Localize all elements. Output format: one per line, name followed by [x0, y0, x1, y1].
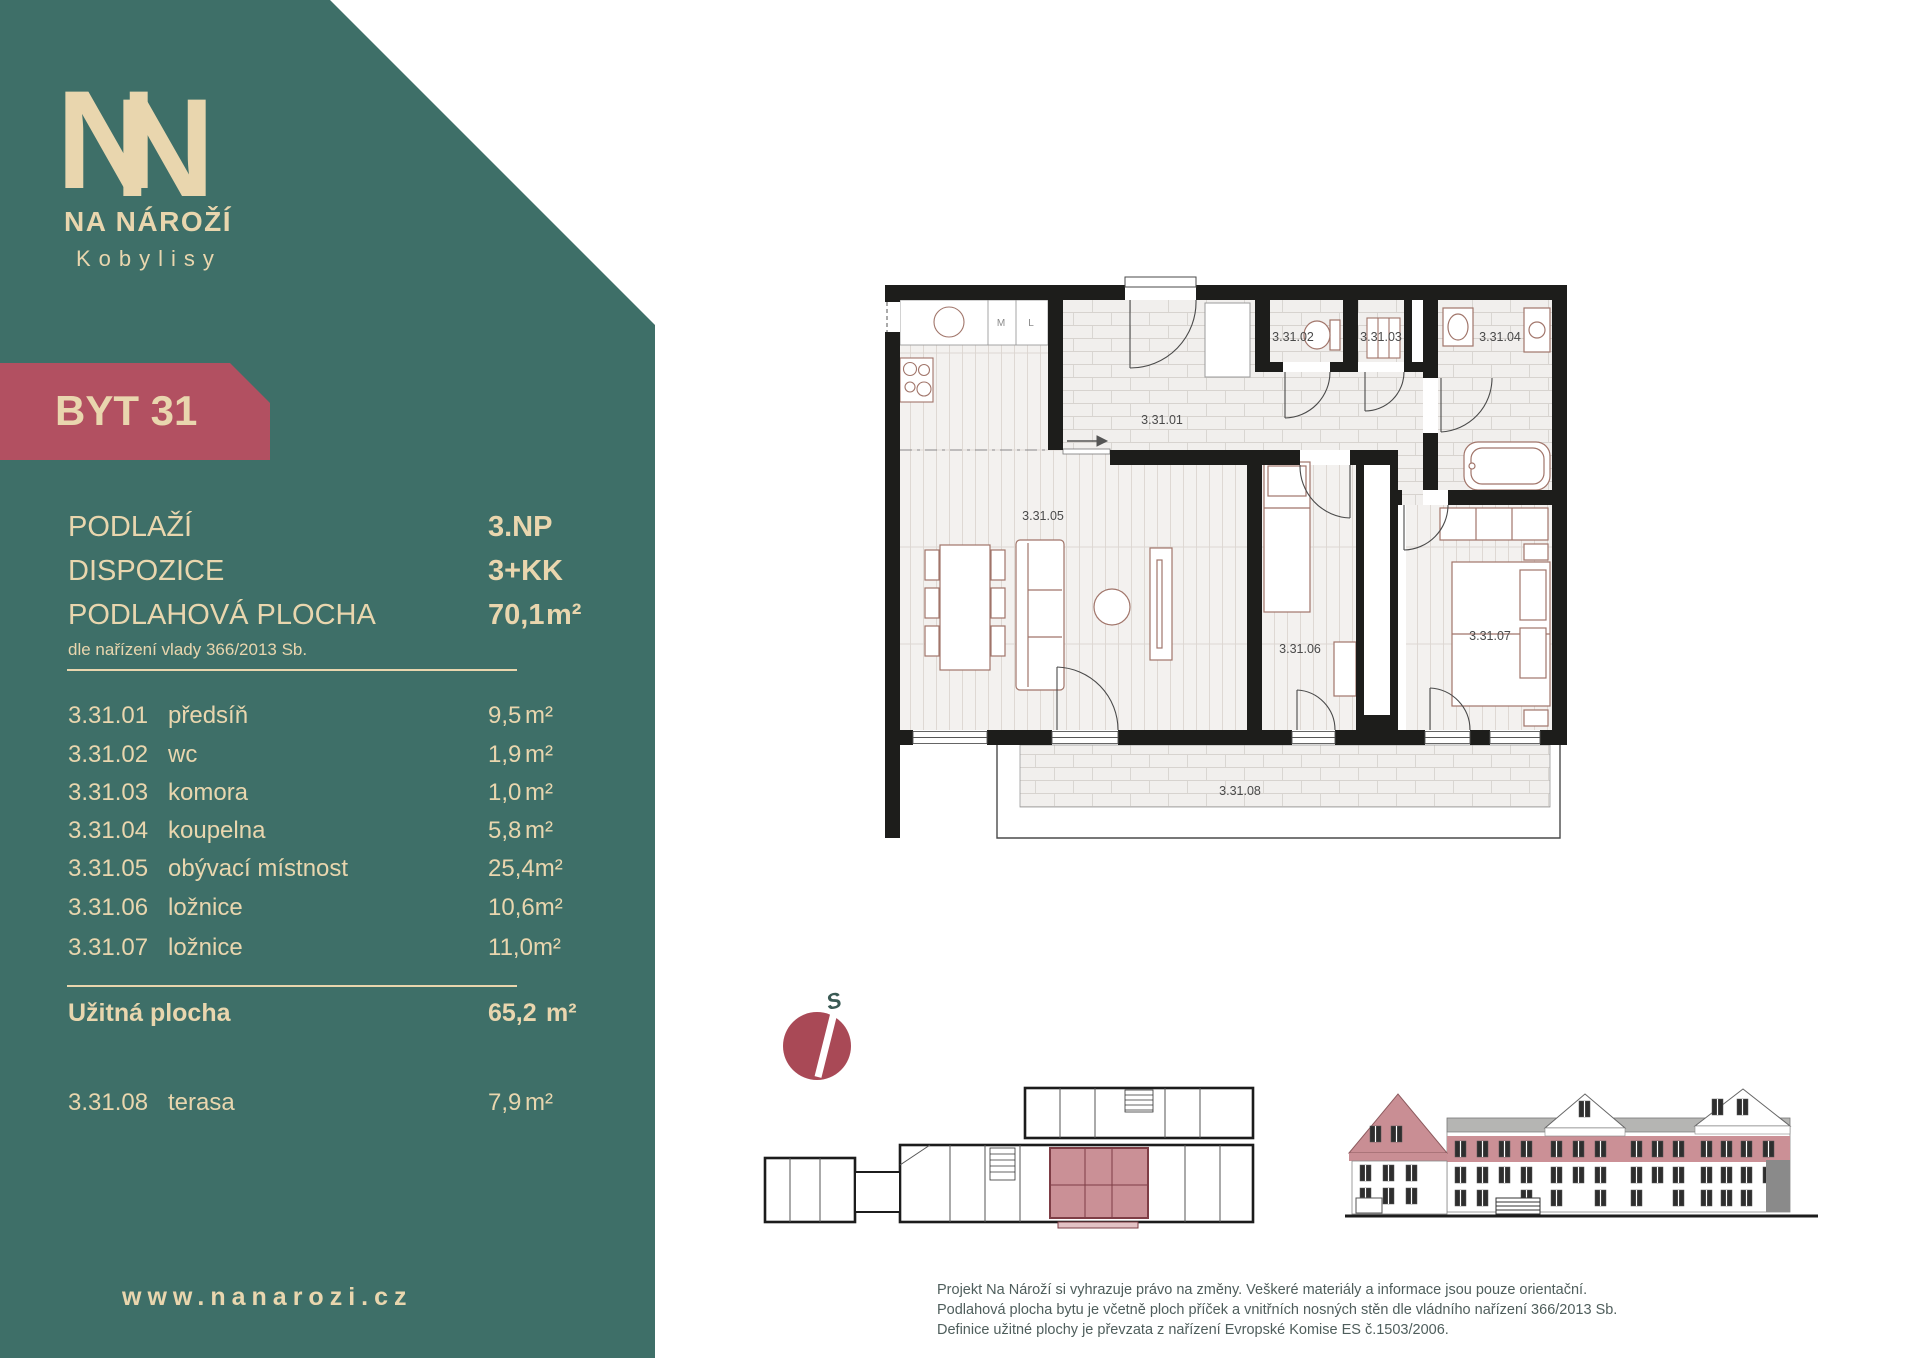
site-plan [765, 1088, 1253, 1228]
wardrobe [1334, 642, 1356, 696]
floorplan: 3.31.08 M L [885, 277, 1567, 838]
apartment-badge-label: BYT 31 [0, 363, 270, 458]
disclaimer: Projekt Na Nároží si vyhrazuje právo na … [937, 1280, 1697, 1340]
building-elevation [1345, 1089, 1818, 1216]
hall-wardrobe [1205, 303, 1250, 377]
dining-set [925, 545, 1005, 670]
room-label: 3.31.01 [1141, 413, 1183, 427]
room-label: 3.31.03 [1360, 330, 1402, 344]
appliance-label-l: L [1028, 318, 1034, 329]
svg-text:N: N [114, 72, 215, 217]
divider [67, 669, 517, 671]
tv-board [1150, 548, 1172, 660]
room-label: 3.31.07 [1469, 629, 1511, 643]
compass: S [783, 987, 851, 1080]
apartment-badge: BYT 31 [0, 363, 270, 460]
disclaimer-line: Projekt Na Nároží si vyhrazuje právo na … [937, 1280, 1697, 1300]
wardrobe-07 [1440, 508, 1548, 540]
coffee-table [1094, 589, 1130, 625]
detail-row: DISPOZICE 3+KK [68, 549, 608, 593]
room-row: 3.31.06ložnice 10,6m² [68, 889, 608, 927]
total-row: Užitná plocha 65,2m² [68, 994, 608, 1032]
compass-north-label: S [824, 987, 845, 1015]
terrace: 3.31.08 [997, 745, 1560, 838]
detail-label: DISPOZICE [68, 555, 224, 587]
room-label: 3.31.02 [1272, 330, 1314, 344]
website-url: www.nanarozi.cz [122, 1283, 413, 1312]
disclaimer-line: Definice užitné plochy je převzata z nař… [937, 1320, 1697, 1340]
flyer-page: 3.31.08 M L [0, 0, 1920, 1358]
room-row: 3.31.04koupelna 5,8m² [68, 812, 608, 850]
disclaimer-line: Podlahová plocha bytu je včetně ploch př… [937, 1300, 1697, 1320]
brand-name: NA NÁROŽÍ [64, 206, 232, 238]
kitchen-counter [900, 300, 1048, 345]
hall-living-threshold [1063, 449, 1110, 454]
kitchen-sink [934, 307, 964, 337]
detail-value: 70,1m² [488, 593, 581, 637]
appliance-label-m: M [997, 318, 1005, 329]
site-highlighted-unit [1050, 1148, 1148, 1228]
total-label: Užitná plocha [68, 999, 231, 1027]
bathtub [1464, 442, 1550, 490]
room-row: 3.31.01předsíň 9,5m² [68, 697, 608, 735]
brand-subtitle: Kobylisy [76, 246, 222, 272]
divider [67, 985, 517, 987]
kitchen-hob [900, 358, 933, 402]
terrace-row: 3.31.08terasa 7,9m² [68, 1084, 608, 1122]
shaft-niche [1364, 465, 1390, 715]
detail-value: 3+KK [488, 549, 563, 593]
room-label: 3.31.04 [1479, 330, 1521, 344]
detail-row: PODLAŽÍ 3.NP [68, 505, 608, 549]
brand-logo-monogram: N N [52, 72, 312, 217]
detail-label: PODLAŽÍ [68, 511, 192, 543]
room-label: 3.31.08 [1219, 784, 1261, 798]
regulation-note: dle nařízení vlady 366/2013 Sb. [68, 640, 307, 660]
room-row: 3.31.05obývací místnost 25,4m² [68, 850, 608, 888]
detail-value: 3.NP [488, 505, 552, 549]
room-label: 3.31.05 [1022, 509, 1064, 523]
detail-label: PODLAHOVÁ PLOCHA [68, 599, 376, 631]
detail-row: PODLAHOVÁ PLOCHA 70,1m² [68, 593, 608, 637]
room-row: 3.31.03komora 1,0m² [68, 774, 608, 812]
room-label: 3.31.06 [1279, 642, 1321, 656]
room-row: 3.31.02wc 1,9m² [68, 736, 608, 774]
room-row: 3.31.07ložnice 11,0m² [68, 929, 608, 967]
washing-machine [1524, 308, 1550, 352]
washbasin [1443, 308, 1473, 346]
